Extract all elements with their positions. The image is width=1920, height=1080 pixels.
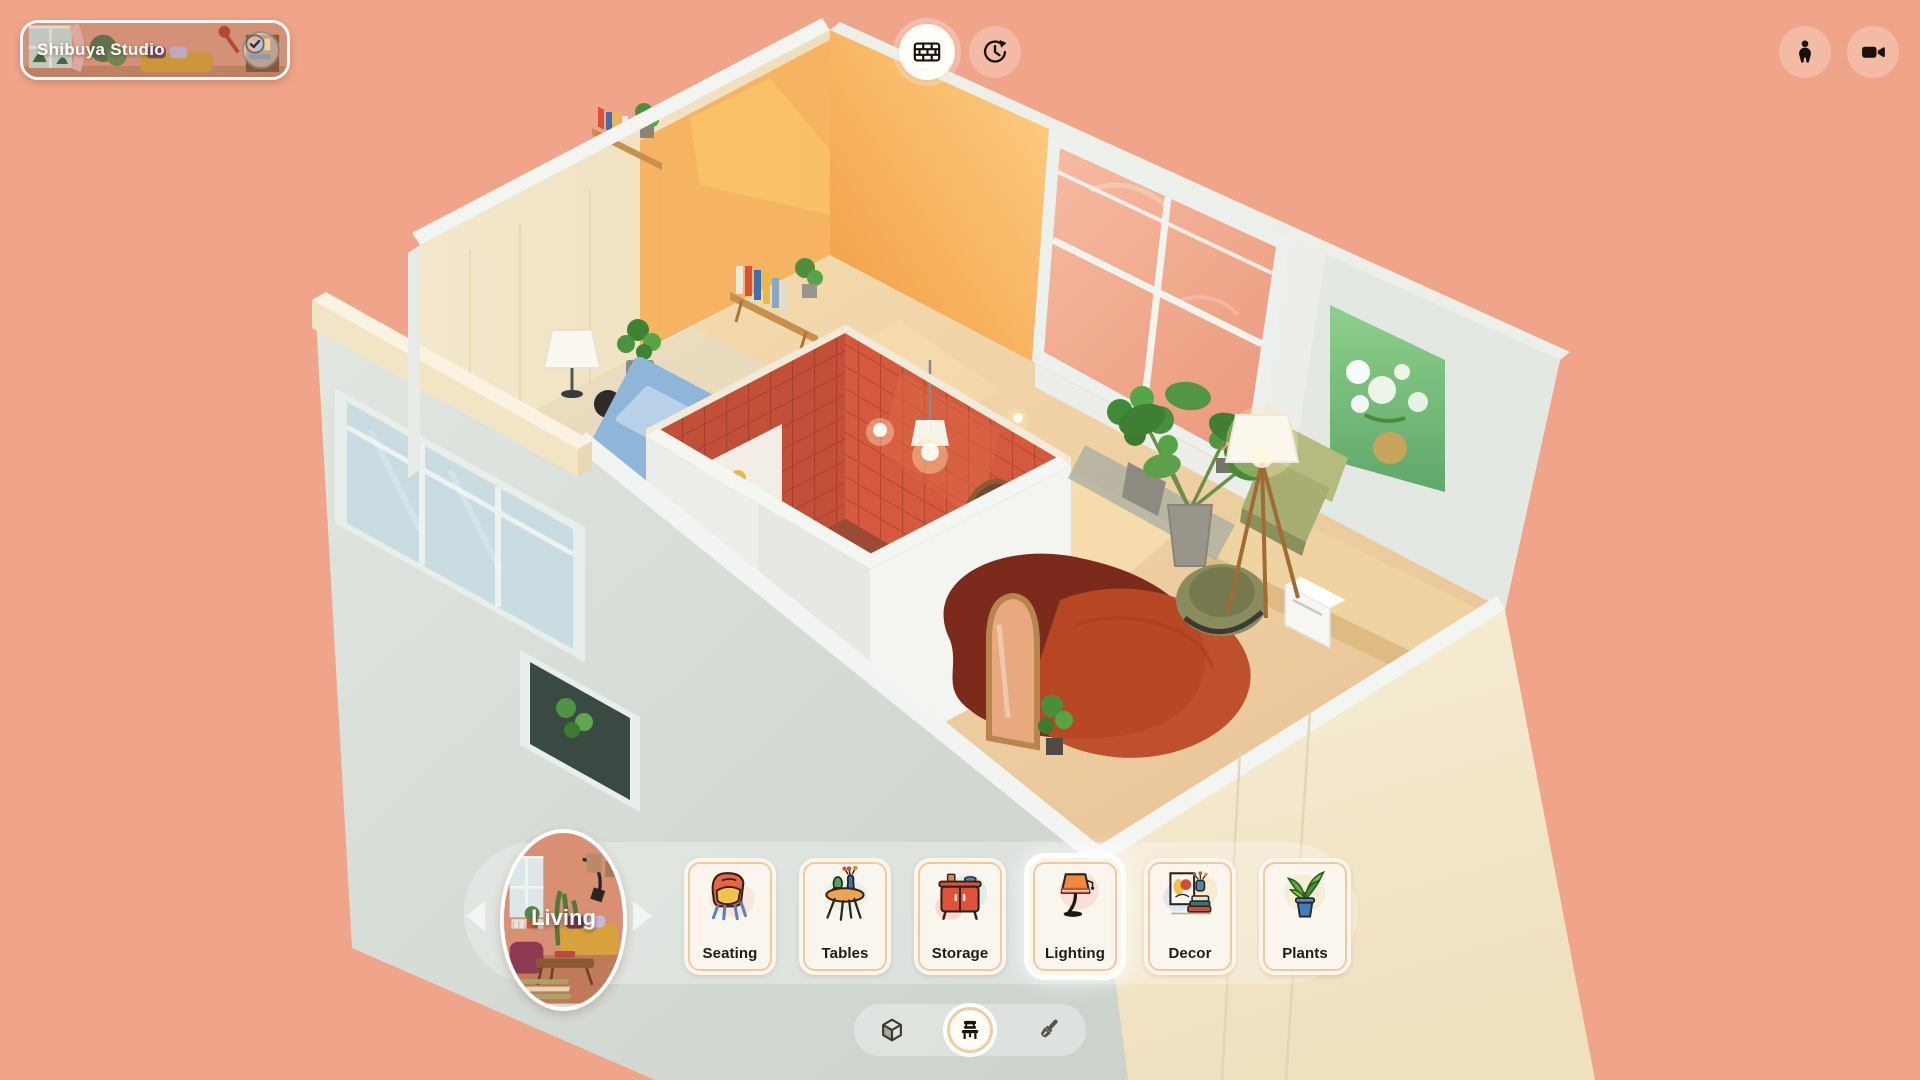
video-camera-icon (1859, 38, 1887, 66)
category-storage[interactable]: Storage (914, 858, 1006, 975)
camera-button[interactable] (1847, 26, 1899, 78)
category-lighting[interactable]: Lighting (1029, 858, 1121, 975)
frame-books-illustration (1157, 866, 1223, 928)
wall-side-edge (408, 245, 420, 478)
check-icon (244, 33, 266, 55)
furnish-mode-button[interactable] (947, 1007, 993, 1053)
project-chip[interactable]: Shibuya Studio (20, 20, 290, 80)
category-plants[interactable]: Plants (1259, 858, 1351, 975)
armchair-illustration (697, 866, 763, 928)
build-mode-button[interactable] (872, 1010, 912, 1050)
person-icon (1791, 38, 1819, 66)
history-button[interactable] (969, 26, 1021, 78)
category-label: Lighting (1029, 945, 1121, 962)
category-decor[interactable]: Decor (1144, 858, 1236, 975)
next-room-arrow[interactable] (633, 901, 652, 931)
desk-chair[interactable] (1176, 564, 1268, 636)
app-canvas[interactable]: Shibuya Studio (0, 0, 1920, 1080)
category-seating[interactable]: Seating (684, 858, 776, 975)
paintbrush-icon (1034, 1016, 1062, 1044)
side-table-illustration (812, 866, 878, 928)
sync-check-badge (242, 31, 280, 69)
cabinet-illustration (927, 866, 993, 928)
entry-mirror[interactable] (989, 596, 1037, 747)
chair-icon (957, 1017, 983, 1043)
category-tables[interactable]: Tables (799, 858, 891, 975)
cube-icon (878, 1016, 906, 1044)
potted-plant-illustration (1272, 866, 1338, 928)
category-label: Tables (799, 945, 891, 962)
walk-mode-button[interactable] (1779, 26, 1831, 78)
prev-room-arrow[interactable] (466, 901, 485, 931)
brick-wall-icon (912, 37, 942, 67)
history-clock-icon (980, 37, 1010, 67)
paint-mode-button[interactable] (1028, 1010, 1068, 1050)
mode-bar (854, 1004, 1086, 1056)
category-label: Storage (914, 945, 1006, 962)
wall-view-button[interactable] (899, 24, 955, 80)
table-lamp-illustration (1042, 866, 1108, 928)
category-label: Decor (1144, 945, 1236, 962)
category-label: Seating (684, 945, 776, 962)
category-label: Plants (1259, 945, 1351, 962)
current-room-label: Living (504, 905, 623, 931)
room-selector[interactable]: Living (500, 829, 627, 1011)
project-title: Shibuya Studio (37, 40, 165, 60)
